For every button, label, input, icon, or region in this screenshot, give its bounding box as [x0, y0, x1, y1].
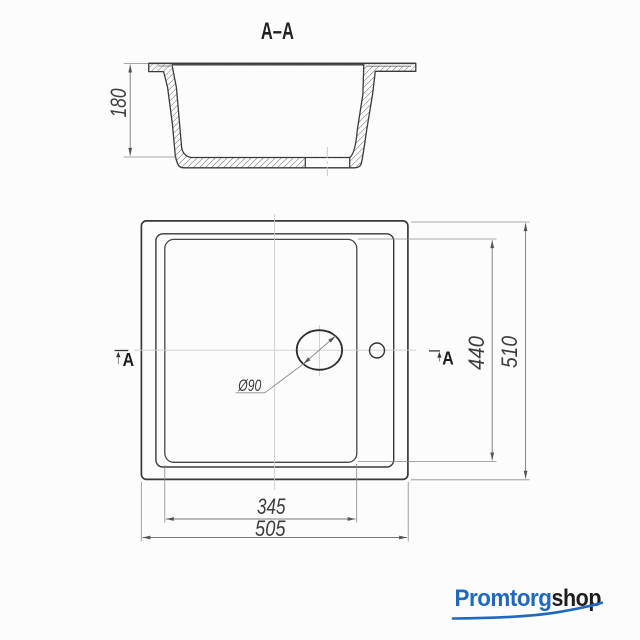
svg-text:Ø90: Ø90	[238, 377, 262, 395]
svg-text:440: 440	[464, 335, 489, 370]
svg-text:180: 180	[106, 88, 131, 118]
svg-text:510: 510	[497, 335, 522, 368]
svg-text:A: A	[442, 349, 454, 369]
svg-text:A–A: A–A	[261, 18, 294, 45]
svg-text:505: 505	[255, 516, 286, 541]
svg-text:A: A	[123, 350, 135, 370]
